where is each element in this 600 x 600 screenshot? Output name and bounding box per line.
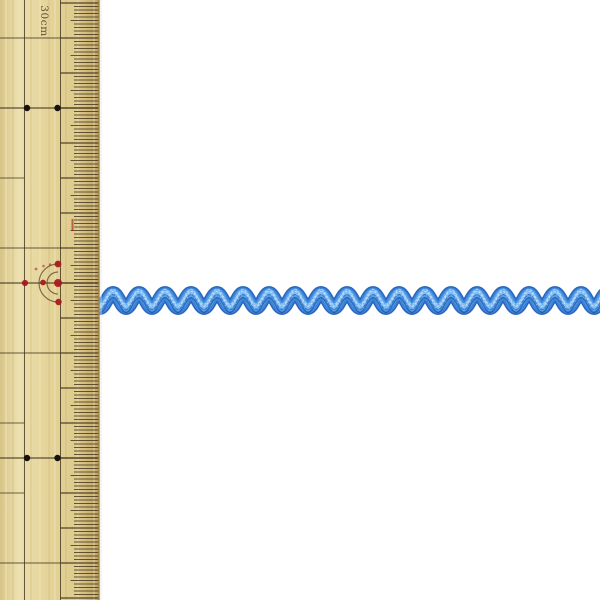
ric-rac-ribbon (87, 289, 600, 312)
black-dot (54, 105, 60, 111)
red-dot (35, 268, 38, 271)
red-dot (49, 263, 51, 265)
scene-svg: 30cm (0, 0, 600, 600)
black-dot (24, 105, 30, 111)
bamboo-ruler (0, 0, 102, 600)
red-dot (55, 261, 62, 268)
red-dot (40, 280, 46, 286)
red-dot (55, 299, 61, 305)
ruler-length-label: 30cm (38, 5, 50, 37)
red-dot (42, 265, 45, 268)
black-dot (54, 455, 60, 461)
black-dot (24, 455, 30, 461)
red-dot (22, 280, 28, 286)
red-dot (54, 279, 62, 287)
product-photo: 30cm (0, 0, 600, 600)
ruler-cast-shadow (100, 0, 103, 600)
